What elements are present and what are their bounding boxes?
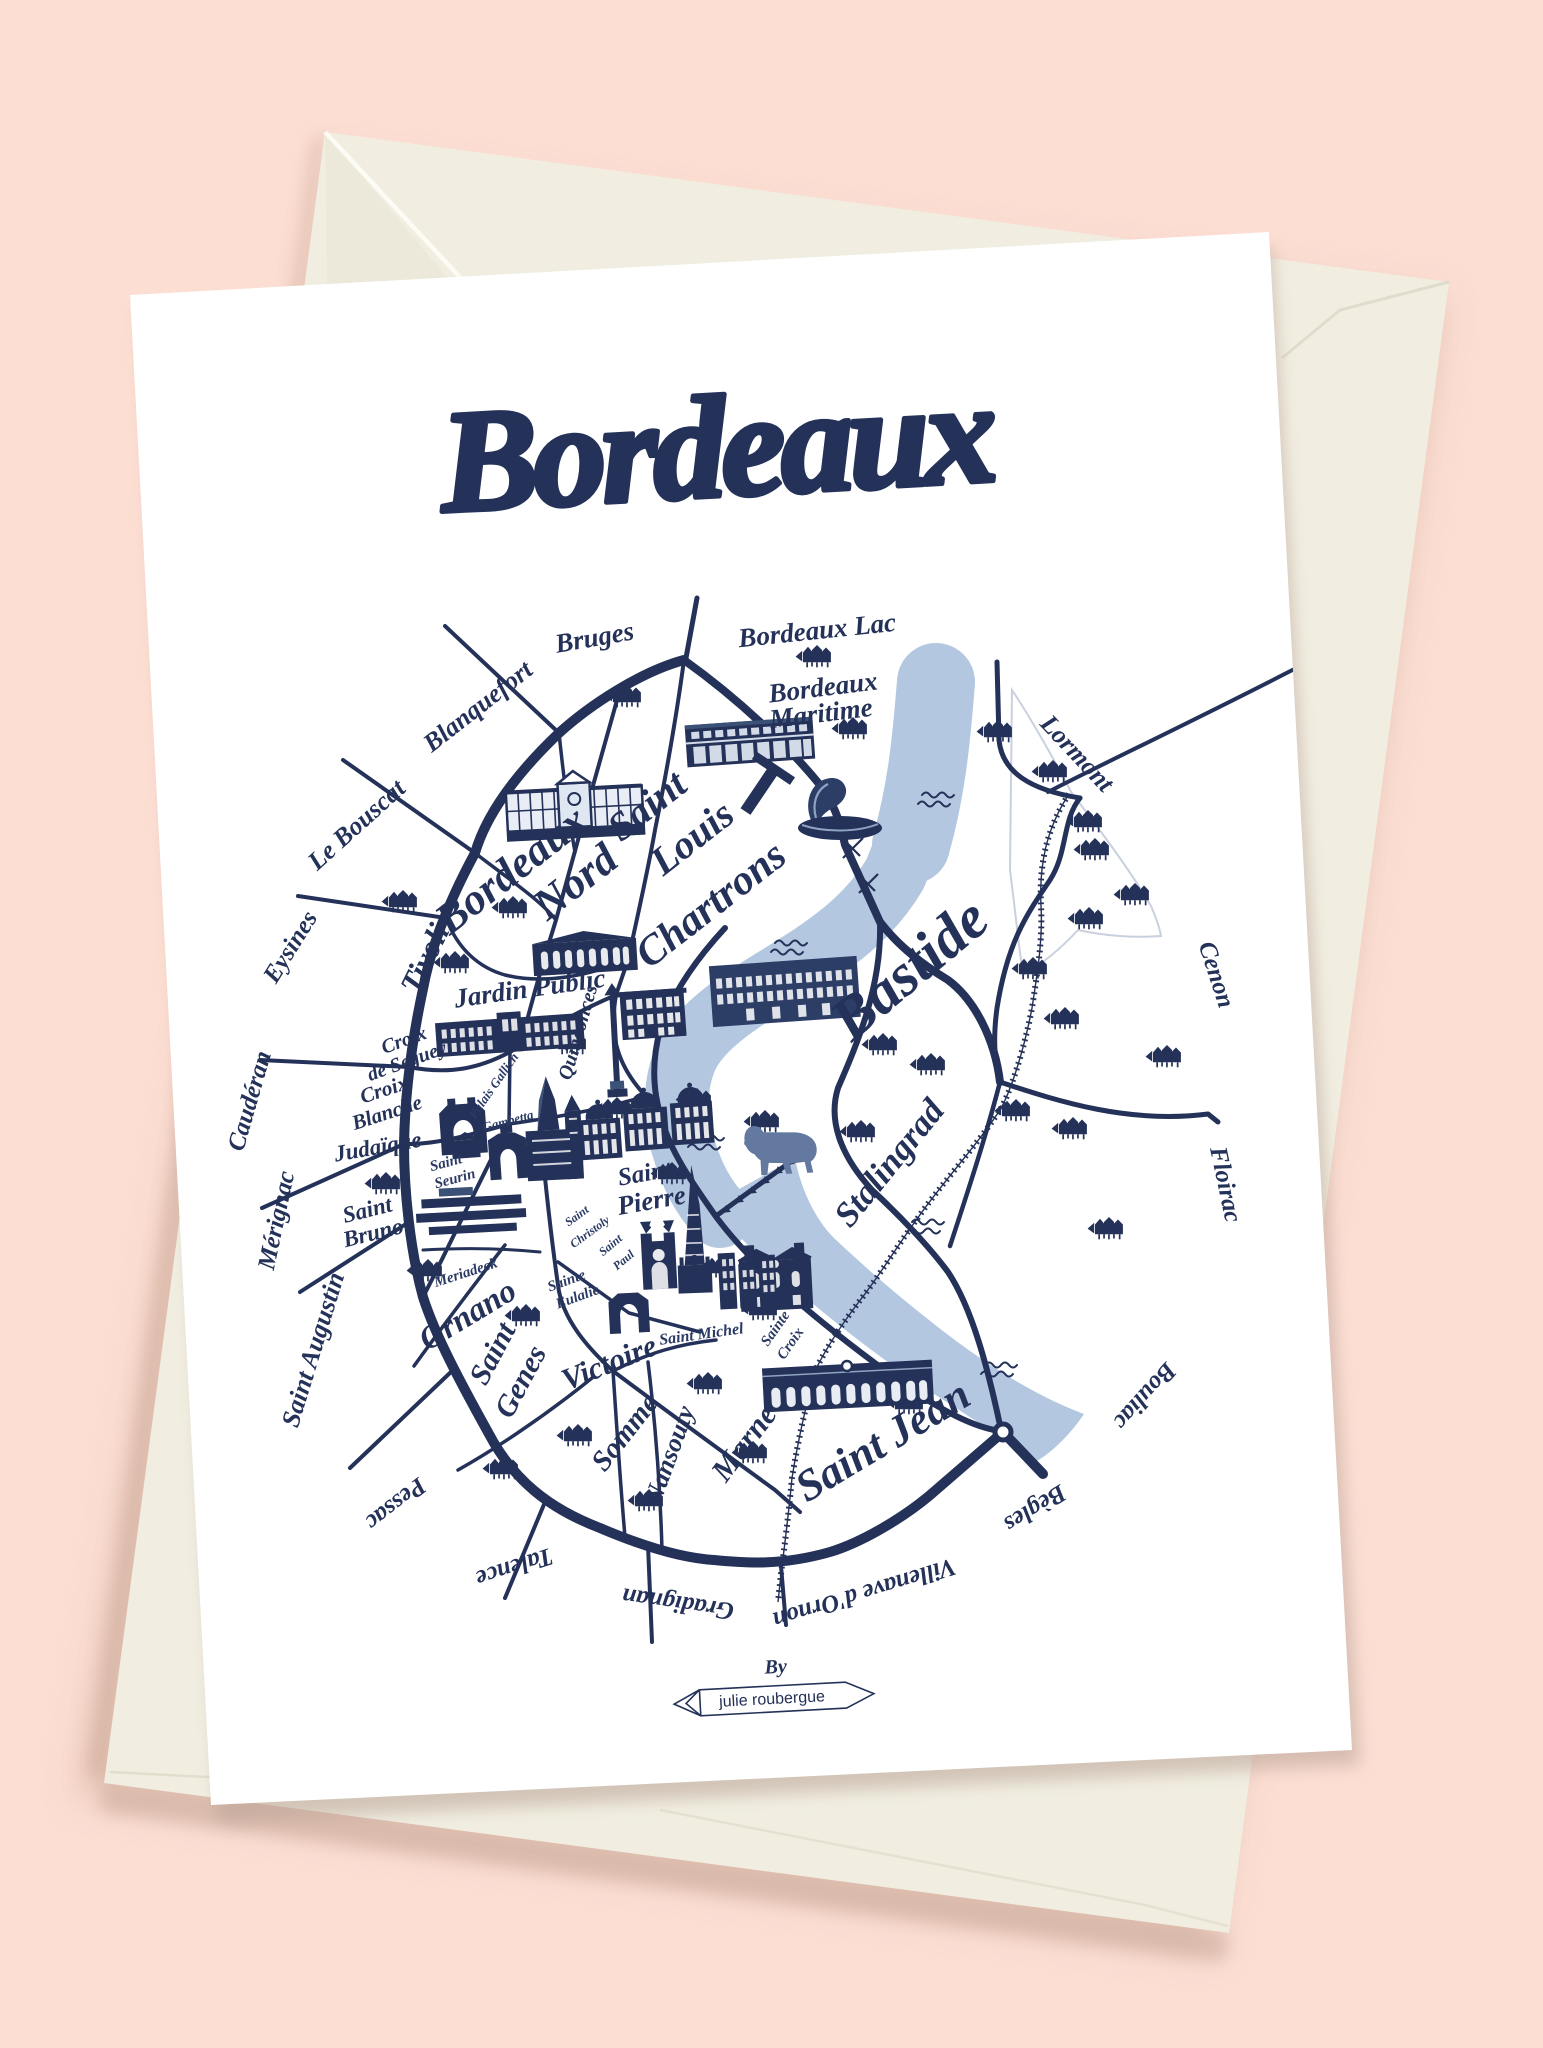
svg-text:Bordeaux: Bordeaux xyxy=(434,351,998,544)
svg-text:By: By xyxy=(763,1655,787,1678)
